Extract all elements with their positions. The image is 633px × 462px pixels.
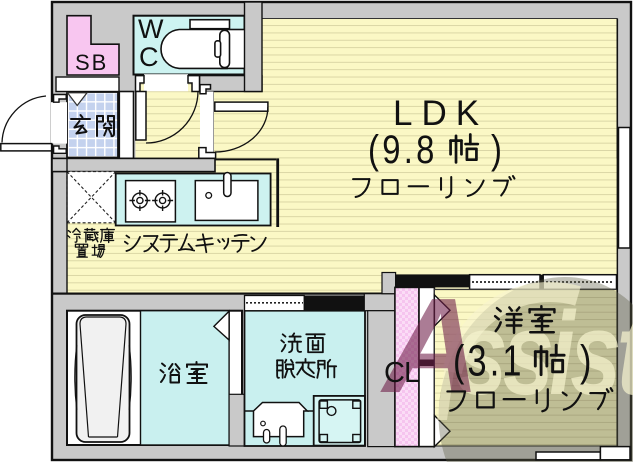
svg-text:(3.1: (3.1 (453, 336, 525, 385)
svg-text:): ) (580, 336, 591, 385)
svg-text:W: W (138, 14, 164, 44)
svg-text:): ) (491, 127, 502, 172)
svg-text:C: C (139, 42, 159, 72)
svg-text:CL: CL (384, 357, 420, 389)
svg-text:(9.8: (9.8 (368, 127, 438, 172)
svg-text:SB: SB (75, 50, 108, 75)
